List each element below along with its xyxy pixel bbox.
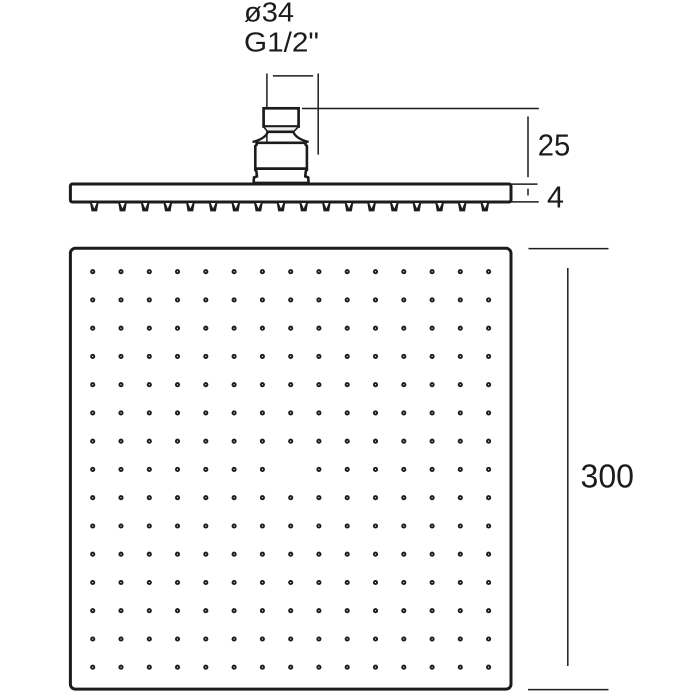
svg-text:300: 300 bbox=[581, 458, 635, 495]
svg-text:ø34: ø34 bbox=[244, 0, 294, 28]
svg-text:25: 25 bbox=[538, 129, 571, 163]
svg-text:4: 4 bbox=[547, 180, 564, 214]
svg-text:G1/2": G1/2" bbox=[244, 27, 319, 58]
